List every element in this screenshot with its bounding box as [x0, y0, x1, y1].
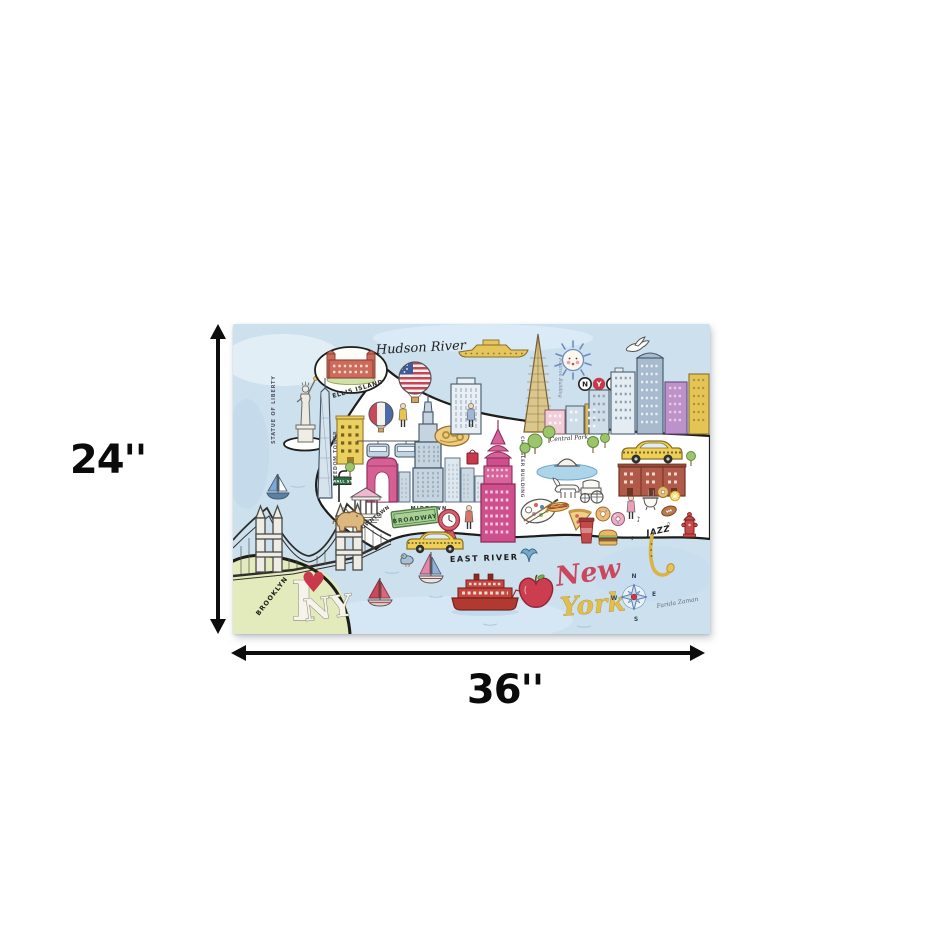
coffee-cup-icon [579, 518, 594, 543]
compass-s: S [634, 616, 638, 623]
arrow-head-left [231, 645, 246, 661]
compass-w: W [611, 595, 618, 602]
statue-of-liberty-label: STATUE OF LIBERTY [271, 375, 277, 444]
wall-st-label: WALL ST [332, 480, 352, 484]
burger-icon [599, 530, 617, 545]
nyc-badge-y: Y [595, 380, 602, 388]
canvas-artwork-new-york-map: STATUE OF LIBERTY ELLIS ISLAND Hudson Ri… [233, 324, 710, 634]
width-dimension-label: 36'' [450, 667, 560, 713]
bagel-icon [658, 487, 669, 498]
york-script: York [559, 587, 627, 623]
product-dimension-image: STATUE OF LIBERTY ELLIS ISLAND Hudson Ri… [0, 0, 950, 950]
new-york-script-lettering: New York [553, 553, 627, 623]
big-apple-icon [519, 574, 552, 607]
height-dimension-label: 24'' [58, 437, 158, 483]
music-note-icon: ♪ [631, 535, 635, 542]
arrow-head-right [690, 645, 705, 661]
ny-map-illustration: STATUE OF LIBERTY ELLIS ISLAND Hudson Ri… [233, 324, 710, 634]
compass-n: N [631, 573, 636, 580]
lemon-slice-icon [670, 491, 680, 501]
nyc-badge-n: N [582, 380, 588, 388]
height-dimension-arrow [206, 323, 230, 635]
rockefeller-building-icon [451, 378, 481, 434]
arrow-head-down [210, 619, 226, 634]
arrow-head-up [210, 324, 226, 339]
compass-e: E [652, 591, 656, 598]
flatiron-building-label: Flatiron Building [557, 357, 563, 398]
yellow-building-icon [336, 416, 364, 464]
width-dimension-arrow [230, 641, 706, 665]
i-love-ny-ny: NY [302, 588, 355, 629]
